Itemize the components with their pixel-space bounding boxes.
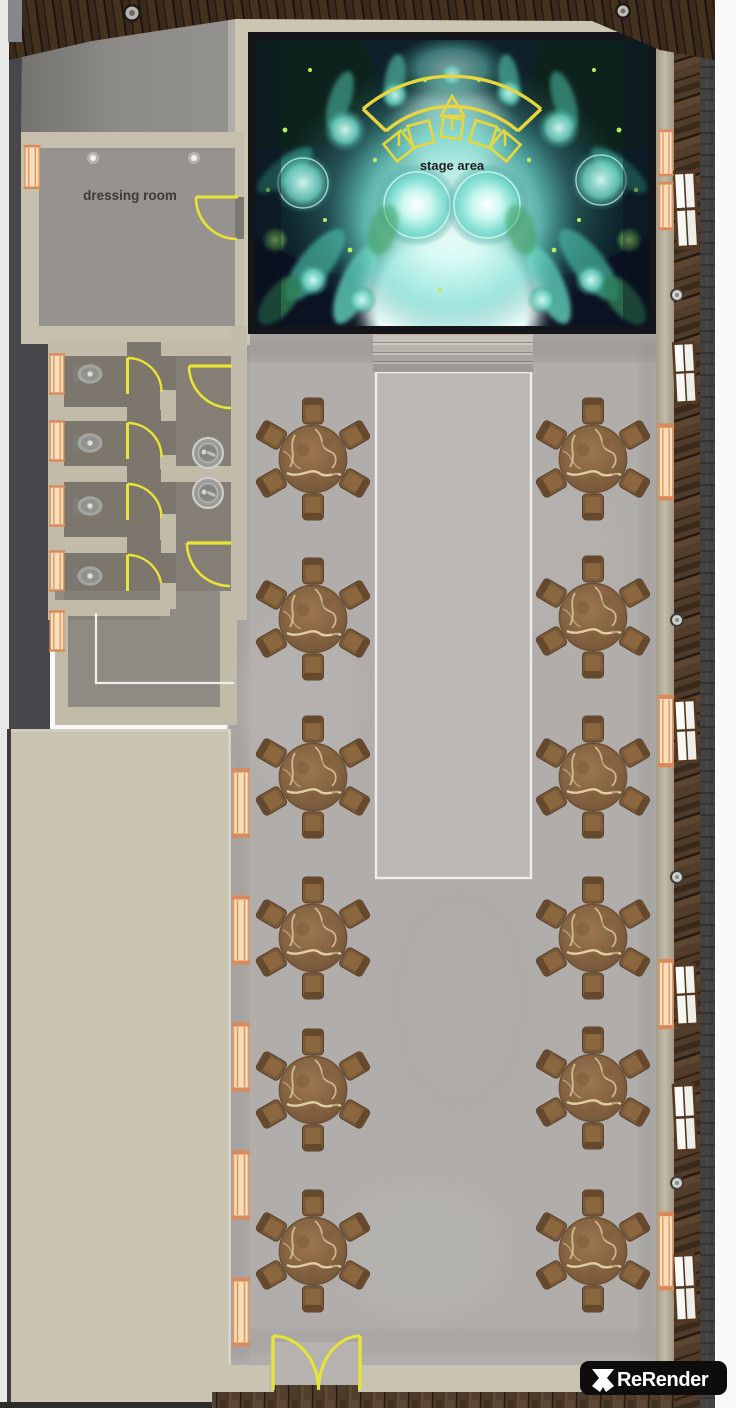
svg-text:dressing room: dressing room — [83, 188, 177, 203]
svg-text:ReRender: ReRender — [617, 1369, 709, 1391]
svg-text:stage area: stage area — [420, 158, 485, 173]
